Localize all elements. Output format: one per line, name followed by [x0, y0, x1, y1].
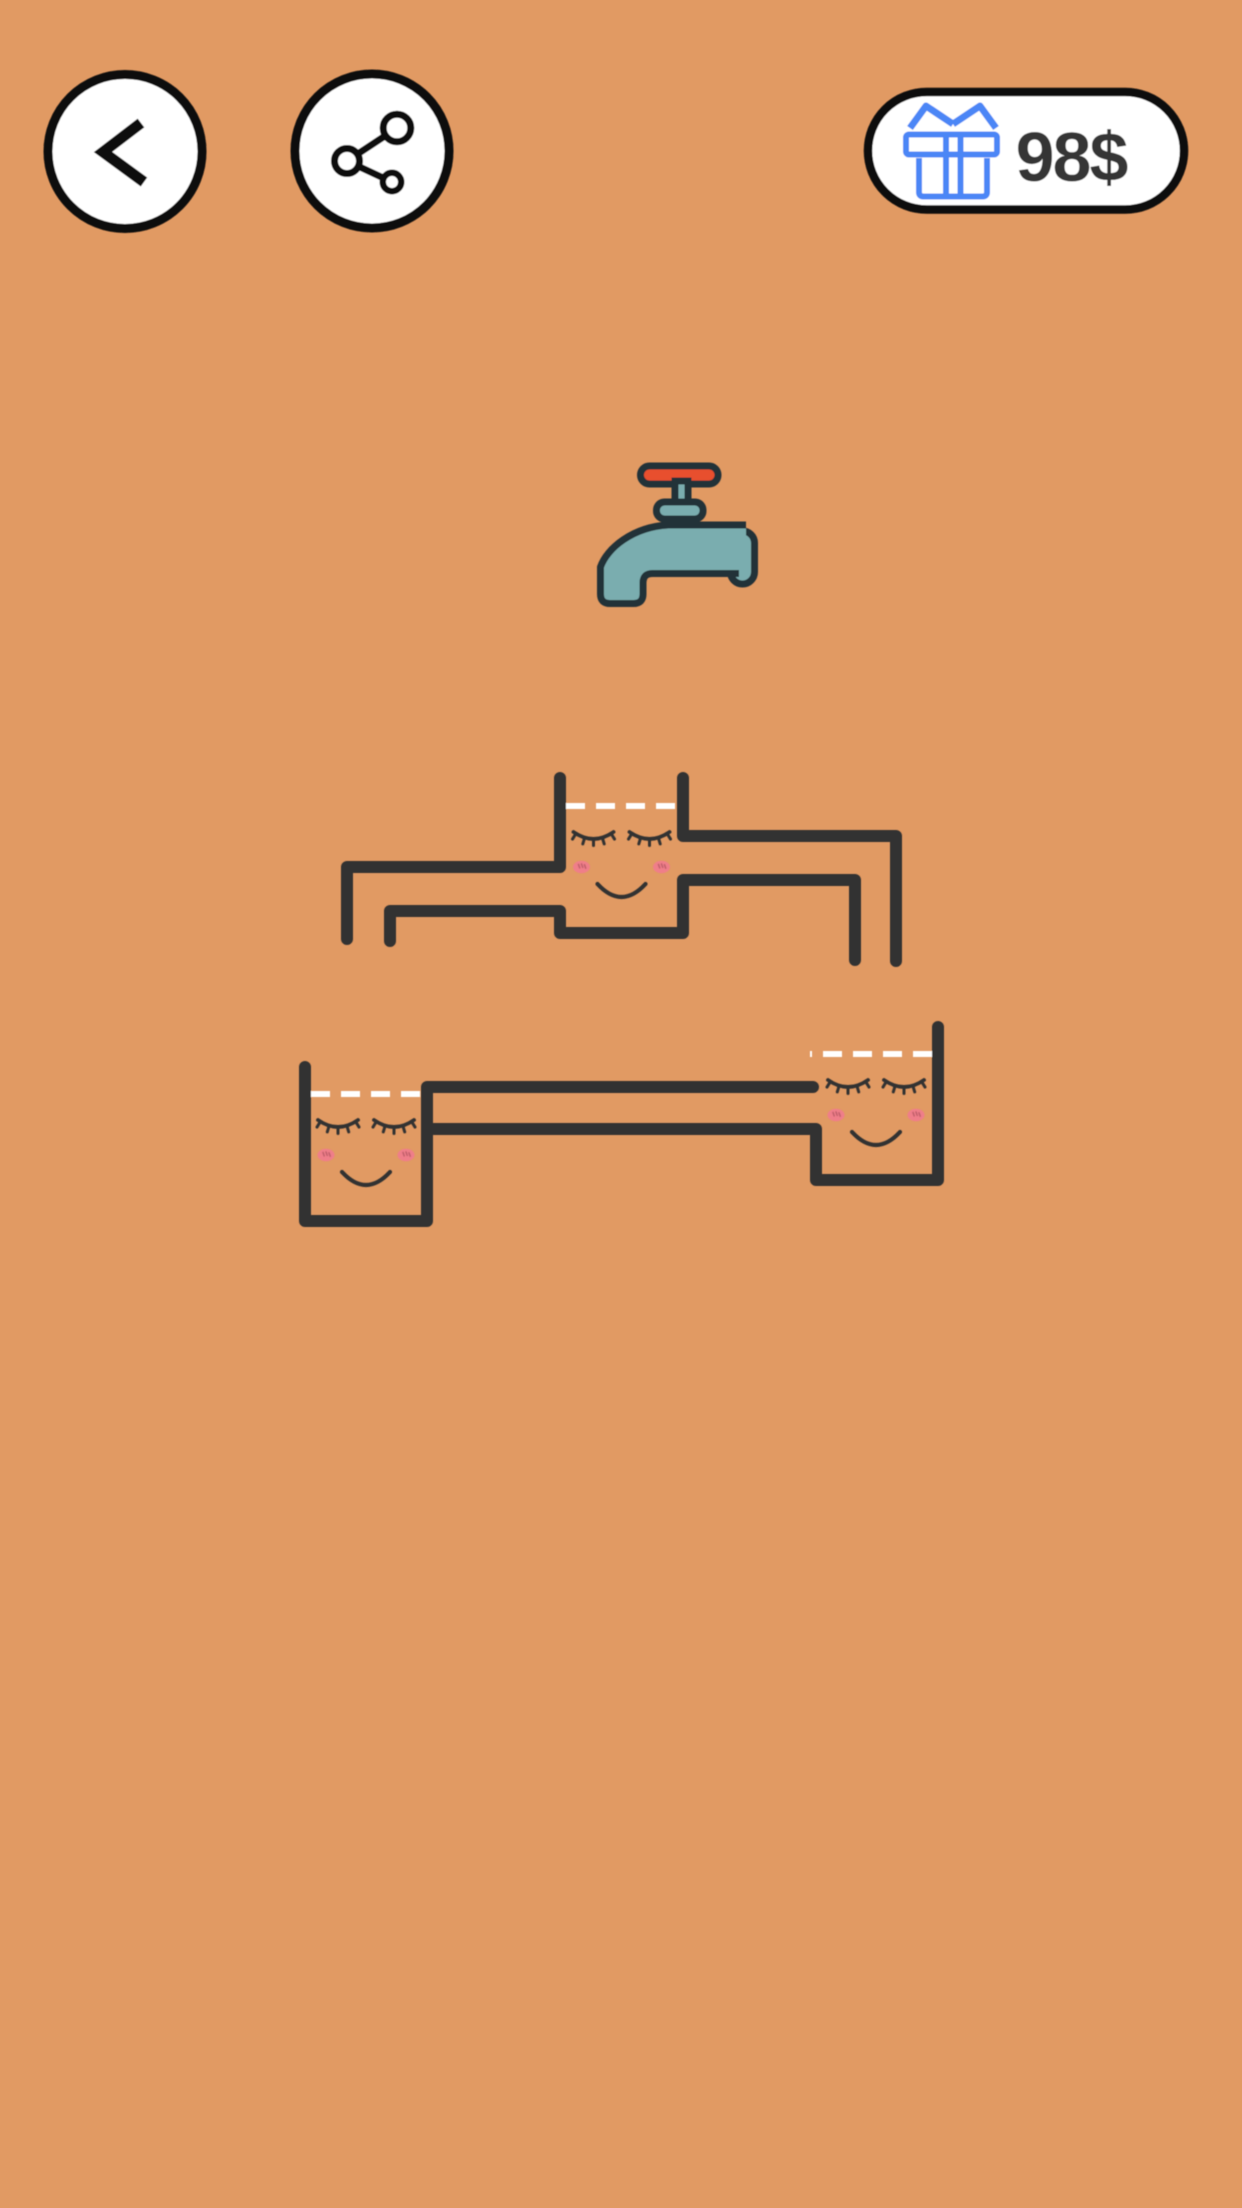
svg-text:98$: 98$ — [1016, 118, 1128, 196]
